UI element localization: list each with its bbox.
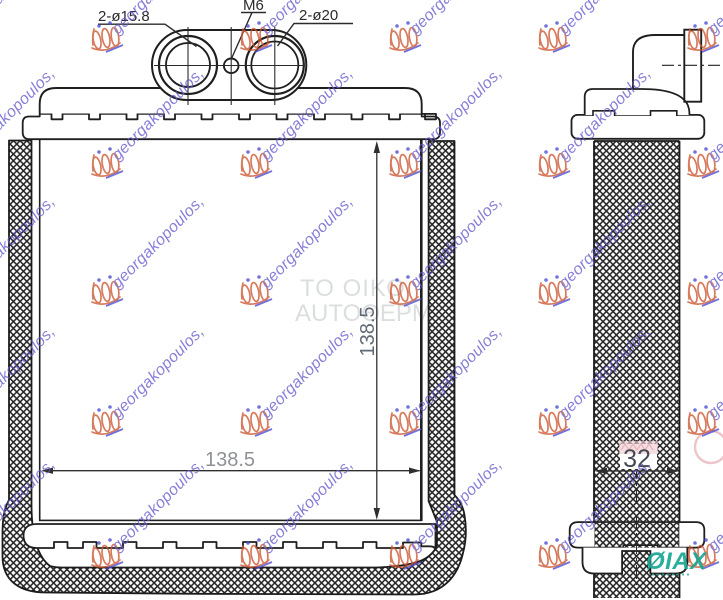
svg-text:138.5: 138.5 <box>357 306 379 356</box>
svg-text:ΤΟ ΟΙΚΟ: ΤΟ ΟΙΚΟ <box>300 275 406 302</box>
svg-text:138.5: 138.5 <box>205 449 255 471</box>
svg-text:ØIAX: ØIAX <box>646 548 708 575</box>
svg-text:2-ø20: 2-ø20 <box>299 7 338 24</box>
